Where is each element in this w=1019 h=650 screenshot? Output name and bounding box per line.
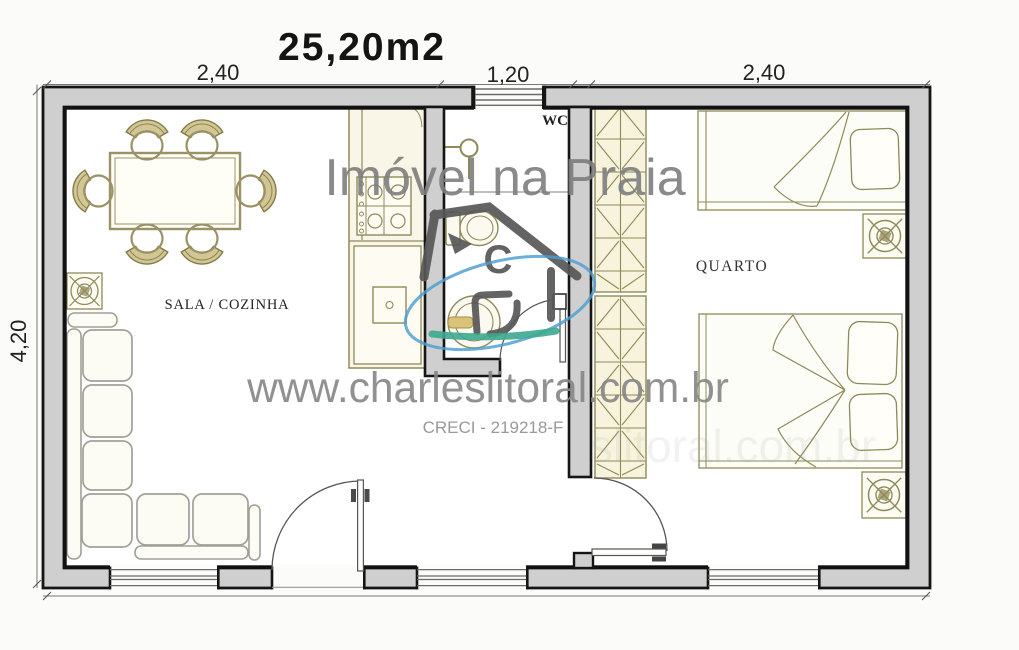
svg-text:2,40: 2,40 <box>743 60 786 85</box>
svg-text:WC: WC <box>542 113 568 129</box>
svg-text:CRECI - 219218-F: CRECI - 219218-F <box>423 418 564 437</box>
svg-text:4,20: 4,20 <box>6 320 31 363</box>
svg-text:25,20m2: 25,20m2 <box>278 26 446 69</box>
svg-text:1,20: 1,20 <box>487 62 530 87</box>
svg-text:www.charleslitoral.com.br: www.charleslitoral.com.br <box>246 365 729 412</box>
svg-text:2,40: 2,40 <box>197 60 240 85</box>
svg-text:QUARTO: QUARTO <box>696 258 768 275</box>
svg-text:Imóvel na Praia: Imóvel na Praia <box>324 149 685 207</box>
svg-text:SALA / COZINHA: SALA / COZINHA <box>165 297 290 313</box>
svg-text:slitoral.com.br: slitoral.com.br <box>590 420 876 472</box>
